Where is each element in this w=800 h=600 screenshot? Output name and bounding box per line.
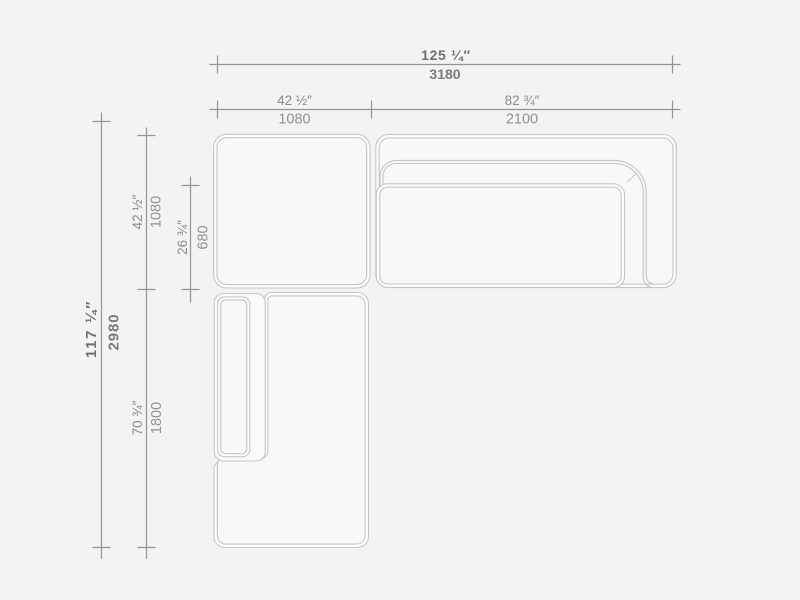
svg-text:42 ½″: 42 ½″	[130, 194, 145, 229]
svg-text:1080: 1080	[278, 112, 310, 128]
svg-text:82 ¾″: 82 ¾″	[505, 93, 540, 108]
svg-text:42 ½″: 42 ½″	[277, 93, 312, 108]
svg-text:2980: 2980	[106, 314, 123, 351]
svg-text:680: 680	[196, 225, 212, 249]
svg-text:3180: 3180	[429, 66, 460, 82]
svg-text:125 ¼″: 125 ¼″	[421, 47, 471, 63]
svg-text:117 ¼″: 117 ¼″	[83, 300, 100, 358]
svg-text:2100: 2100	[506, 112, 538, 128]
svg-text:1080: 1080	[149, 196, 165, 228]
svg-text:70 ¾″: 70 ¾″	[130, 400, 145, 435]
svg-text:26 ¾″: 26 ¾″	[175, 220, 190, 255]
svg-text:1800: 1800	[149, 402, 165, 434]
